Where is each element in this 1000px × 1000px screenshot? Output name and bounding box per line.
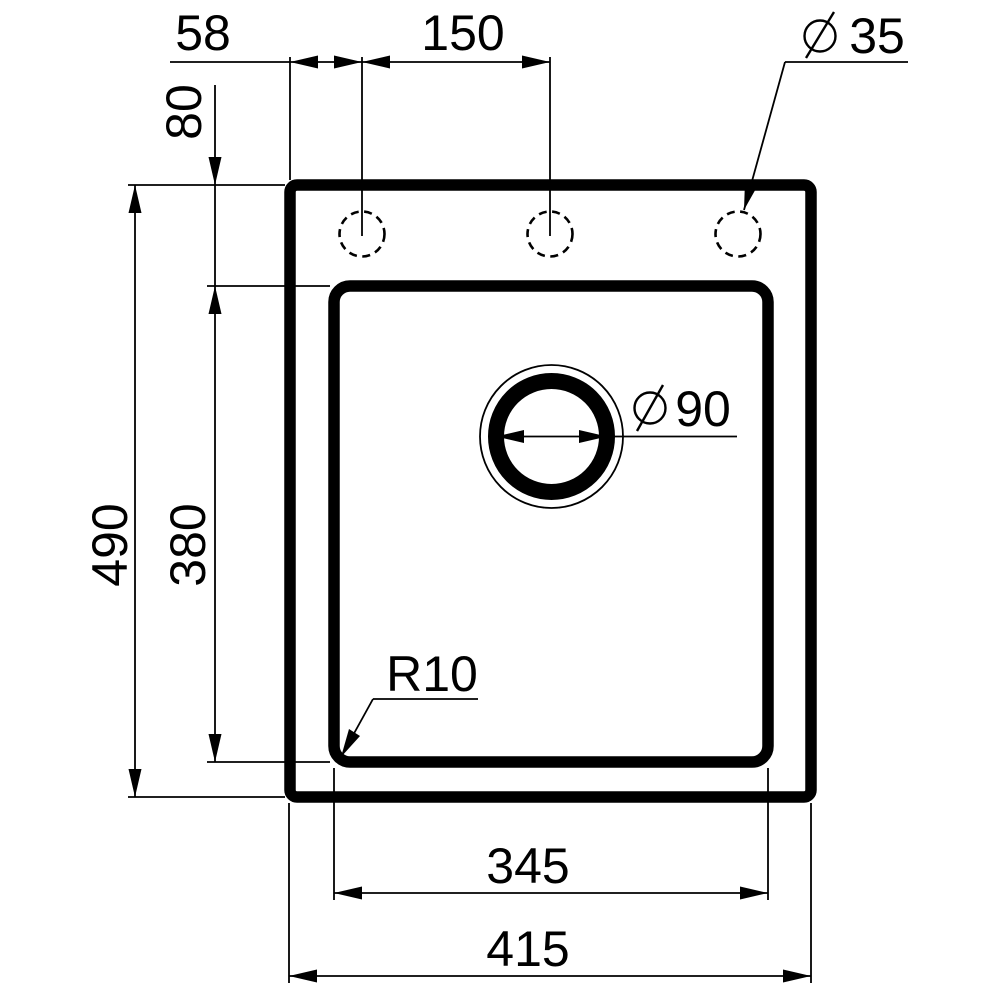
- sink-dimension-drawing: 58 150 35 80 490 380 90 R10 345 415: [0, 0, 1000, 1000]
- dim-label-345: 345: [486, 838, 569, 894]
- dim-label-dia35: 35: [849, 8, 905, 64]
- dim-label-380: 380: [160, 503, 216, 586]
- dim-label-r10: R10: [386, 646, 478, 702]
- dim-label-490: 490: [82, 503, 138, 586]
- dim-label-150: 150: [421, 5, 504, 61]
- dim-label-415: 415: [486, 921, 569, 977]
- technical-drawing-canvas: 58 150 35 80 490 380 90 R10 345 415: [0, 0, 1000, 1000]
- dim-label-58: 58: [175, 5, 231, 61]
- dim-label-dia90: 90: [675, 381, 731, 437]
- dim-label-80: 80: [156, 84, 212, 140]
